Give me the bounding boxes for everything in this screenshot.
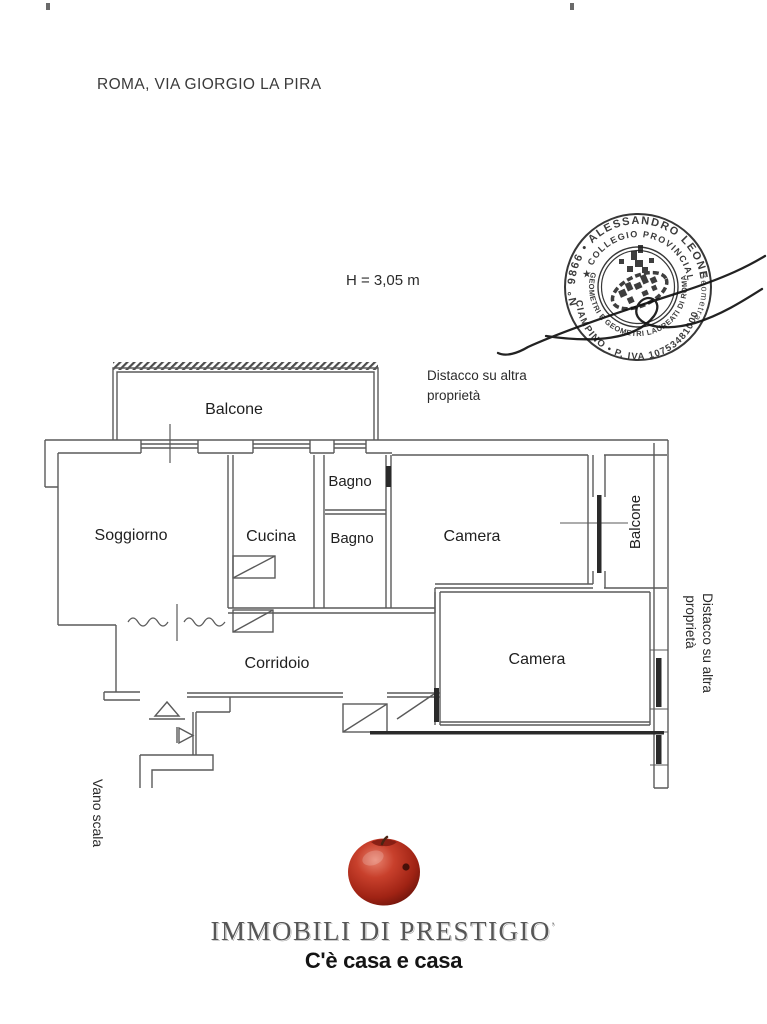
brand-tagline: C'è casa e casa (0, 948, 767, 974)
scan-artifacts (46, 3, 574, 10)
label-cucina: Cucina (246, 528, 296, 545)
label-soggiorno: Soggiorno (95, 527, 168, 544)
label-balcone-top: Balcone (205, 401, 263, 418)
label-bagno-2: Bagno (330, 530, 373, 547)
label-balcone-right: Balcone (627, 495, 644, 549)
label-bagno-1: Bagno (328, 473, 371, 490)
bagno-door-bar (386, 466, 391, 487)
balcony-hatch (113, 362, 378, 370)
entry-door-triangle-2 (177, 727, 193, 743)
boundary-heavy-line (370, 731, 664, 735)
agency-logo: IMMOBILI DI PRESTIGIO’ C'è casa e casa (0, 834, 767, 974)
detachment-note-right-line1: Distacco su altra (700, 593, 715, 693)
right-window-bar-1 (656, 658, 662, 707)
entry-door-triangle (149, 702, 185, 719)
room-labels: Balcone Soggiorno Cucina Bagno Bagno Cam… (90, 401, 715, 847)
label-camera-1: Camera (444, 528, 501, 545)
balcony-door-bar (597, 495, 602, 573)
camera2-door-bar (434, 688, 439, 722)
door-leaf-camera2 (397, 694, 434, 719)
brand-name: IMMOBILI DI PRESTIGIO’ (0, 916, 767, 947)
right-window-bar-2 (656, 735, 662, 764)
brand-name-text: IMMOBILI DI PRESTIGIO (211, 916, 551, 946)
plan-thick-marks (370, 466, 664, 764)
stair-landing (140, 755, 213, 788)
window-cucina (253, 440, 310, 453)
plan-walls (45, 362, 668, 788)
label-camera-2: Camera (509, 651, 566, 668)
label-corridoio: Corridoio (245, 655, 310, 672)
detachment-note-right-line2: proprietà (683, 595, 698, 649)
scanned-floorplan-page: ROMA, VIA GIORGIO LA PIRA H = 3,05 m Dis… (0, 0, 767, 1024)
door-symbols (233, 556, 387, 732)
brand-mark: ’ (551, 919, 557, 933)
window-bagno (334, 440, 366, 453)
apple-logo-icon (343, 834, 425, 908)
